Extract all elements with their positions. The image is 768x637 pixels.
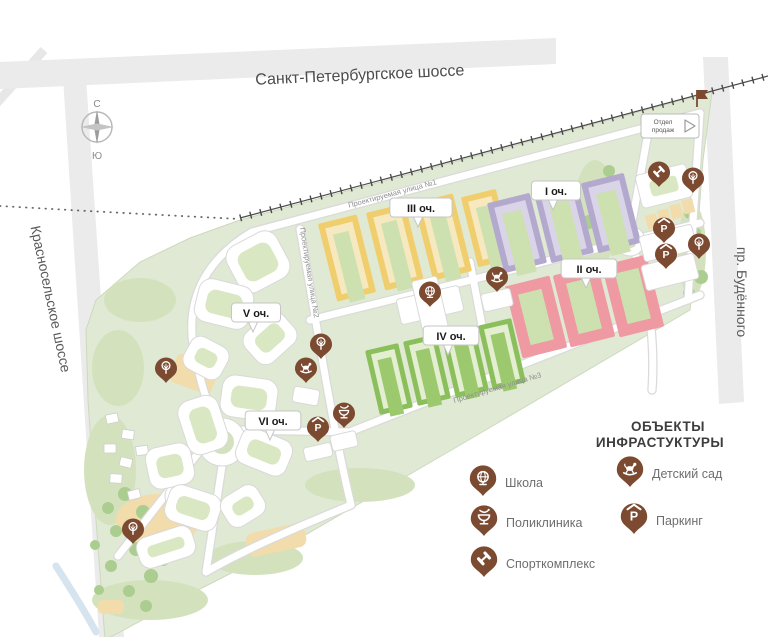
- compass-north-label: С: [93, 99, 100, 110]
- map-canvas: P: [0, 0, 768, 637]
- right-road-label: пр. Будённого: [734, 247, 750, 338]
- compass-south-label: Ю: [92, 151, 102, 162]
- left-road-label: Красносельское шоссе: [28, 224, 75, 374]
- sales-office-label2: продаж: [652, 127, 675, 134]
- legend-item-label: Спорткомплекс: [506, 557, 595, 571]
- sport-icon: [471, 546, 497, 577]
- phase-bubble-label: III оч.: [407, 203, 435, 215]
- phase-bubble-label: IV оч.: [436, 331, 465, 343]
- legend-item-label: Школа: [505, 476, 543, 490]
- masterplan-map: P: [0, 0, 768, 637]
- parking-icon: [621, 503, 647, 534]
- legend-item-parking: Паркинг: [621, 503, 703, 534]
- dotted-boundary: [0, 206, 240, 219]
- phase-bubble-label: V оч.: [243, 308, 269, 320]
- phase-bubble-label: I оч.: [545, 186, 567, 198]
- sales-office[interactable]: Отдел продаж: [641, 90, 708, 138]
- legend: ОБЪЕКТЫ ИНФРАСТУКТУРЫ ШколаПоликлиникаСп…: [470, 419, 724, 577]
- phase-bubble-label: VI оч.: [258, 416, 287, 428]
- legend-item-label: Паркинг: [656, 514, 703, 528]
- stream: [56, 566, 96, 632]
- legend-title-line2: ИНФРАСТУКТУРЫ: [596, 435, 724, 450]
- legend-title-line1: ОБЪЕКТЫ: [631, 419, 705, 434]
- legend-item-polyclinic: Поликлиника: [471, 505, 583, 536]
- legend-item-school: Школа: [470, 465, 543, 496]
- phase-bubble-label: II оч.: [576, 264, 601, 276]
- legend-item-label: Детский сад: [652, 467, 723, 481]
- school-icon: [470, 465, 496, 496]
- legend-item-label: Поликлиника: [506, 516, 582, 530]
- legend-item-sport: Спорткомплекс: [471, 546, 595, 577]
- polyclinic-icon: [471, 505, 497, 536]
- kindergarten-icon: [617, 456, 643, 487]
- sales-office-label: Отдел: [654, 119, 673, 126]
- legend-item-kindergarten: Детский сад: [617, 456, 723, 487]
